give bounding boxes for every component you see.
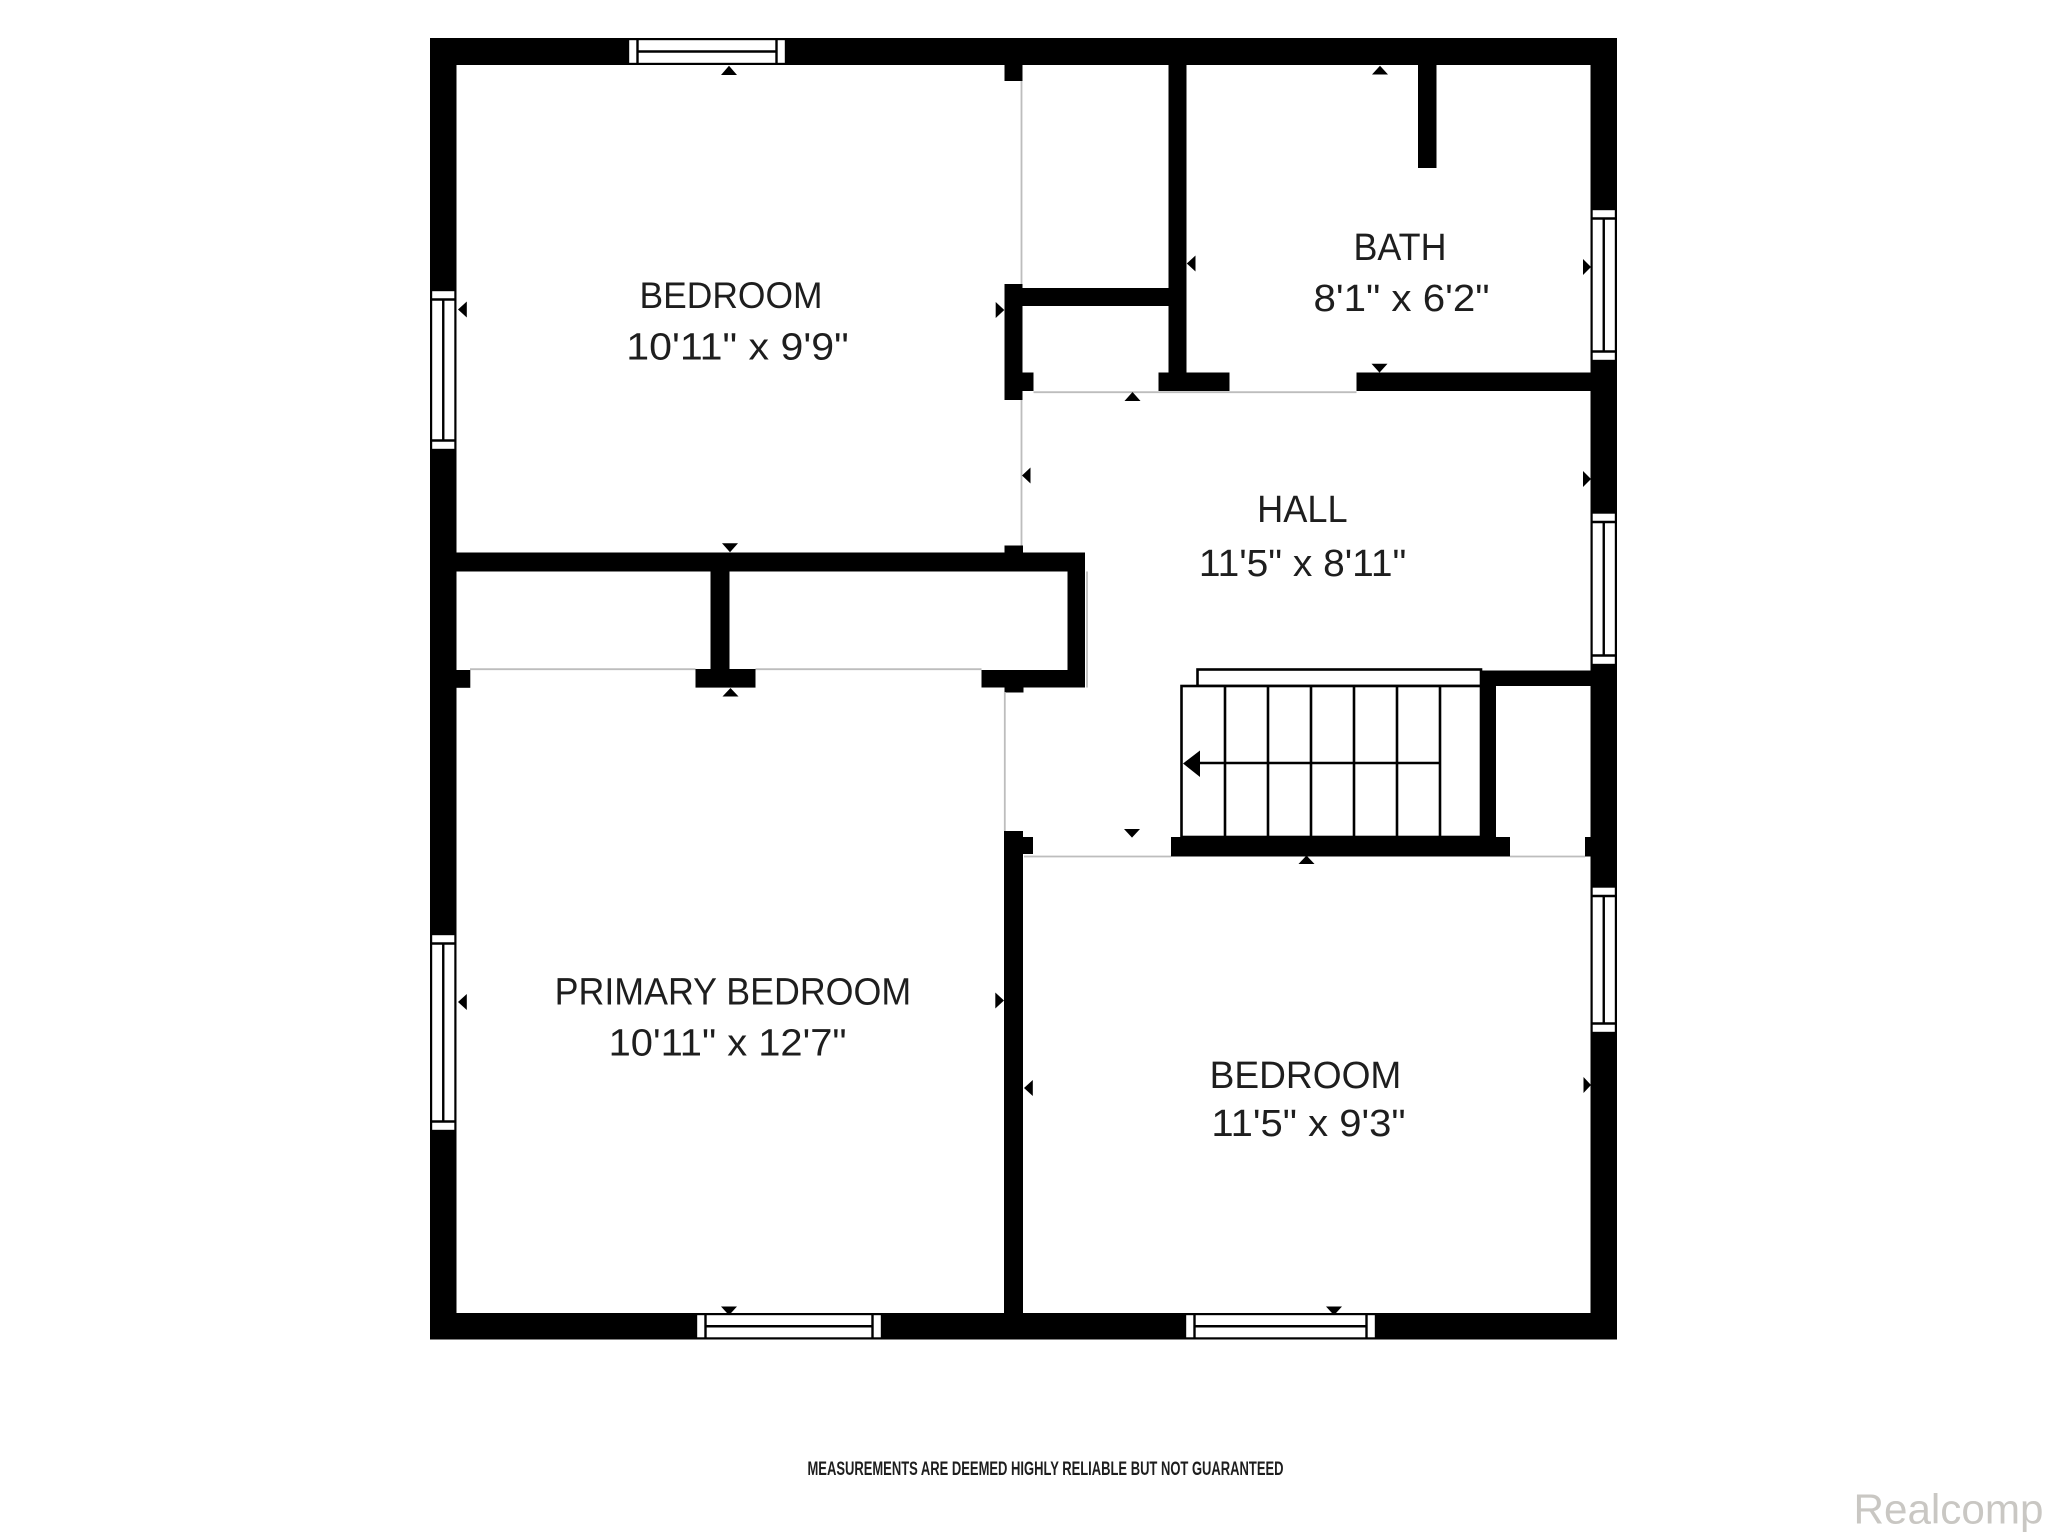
svg-text:Realcomp: Realcomp	[1854, 1486, 2044, 1533]
svg-text:11'5" x 8'11": 11'5" x 8'11"	[1199, 543, 1407, 585]
svg-text:PRIMARY BEDROOM: PRIMARY BEDROOM	[555, 972, 912, 1014]
svg-text:HALL: HALL	[1257, 489, 1348, 531]
svg-text:BEDROOM: BEDROOM	[1210, 1055, 1402, 1097]
svg-text:BATH: BATH	[1354, 227, 1447, 269]
svg-text:MEASUREMENTS ARE DEEMED HIGHLY: MEASUREMENTS ARE DEEMED HIGHLY RELIABLE …	[808, 1458, 1284, 1480]
svg-text:10'11" x 12'7": 10'11" x 12'7"	[609, 1023, 847, 1065]
svg-text:BEDROOM: BEDROOM	[640, 275, 823, 316]
svg-text:11'5" x 9'3": 11'5" x 9'3"	[1211, 1103, 1405, 1145]
svg-text:8'1" x 6'2": 8'1" x 6'2"	[1314, 278, 1490, 320]
svg-text:10'11" x 9'9": 10'11" x 9'9"	[626, 327, 849, 369]
